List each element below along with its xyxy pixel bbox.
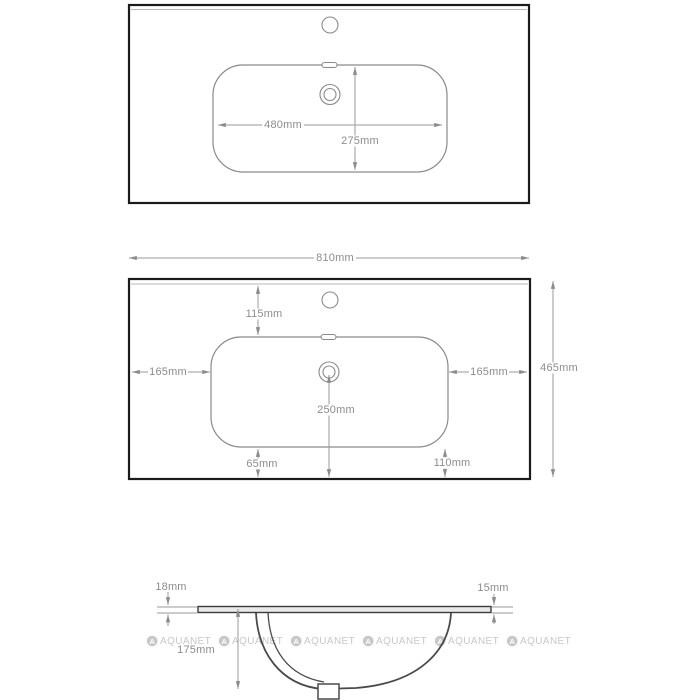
- watermark-label: AQUANET: [304, 636, 355, 647]
- technical-drawing-canvas: A AQUANET A AQUANET A AQUANET A AQUANET …: [0, 0, 700, 700]
- watermark-label: AQUANET: [520, 636, 571, 647]
- aquanet-watermark: A AQUANET: [291, 636, 355, 647]
- aquanet-logo-letter: A: [365, 637, 371, 646]
- top-plan-view: 480mm 275mm: [129, 5, 529, 203]
- sink-technical-drawing-page: A AQUANET A AQUANET A AQUANET A AQUANET …: [0, 0, 700, 700]
- dimension-label: 18mm: [155, 581, 186, 593]
- dimension-label: 110mm: [434, 457, 471, 469]
- overflow-slot: [321, 335, 336, 340]
- drain-inner-ring: [324, 89, 336, 101]
- bowl-inner-profile: [268, 613, 324, 682]
- aquanet-watermark: A AQUANET: [507, 636, 571, 647]
- dimension-label: 480mm: [264, 119, 302, 131]
- dimension-label: 165mm: [470, 366, 508, 378]
- dimension-label: 465mm: [540, 362, 578, 374]
- dimension-label: 810mm: [316, 252, 354, 264]
- dimension-left-thickness: 18mm: [155, 581, 186, 626]
- dimension-label: 15mm: [477, 582, 508, 594]
- dimension-total-width: 810mm: [129, 252, 529, 264]
- overflow-slot: [322, 63, 337, 68]
- aquanet-logo-letter: A: [509, 637, 515, 646]
- aquanet-logo-letter: A: [221, 637, 227, 646]
- watermark-label: AQUANET: [376, 636, 427, 647]
- dimension-label: 165mm: [149, 366, 187, 378]
- watermark-label: AQUANET: [448, 636, 499, 647]
- aquanet-logo-letter: A: [149, 637, 155, 646]
- dimension-label: 115mm: [246, 308, 283, 320]
- countertop-slab-profile: [198, 607, 491, 613]
- bowl-outer-profile: [256, 613, 451, 689]
- faucet-hole: [322, 17, 338, 33]
- dimension-total-depth: 465mm: [540, 281, 579, 477]
- aquanet-watermark: A AQUANET: [363, 636, 427, 647]
- dimensioned-plan-view: 810mm 115mm 165mm 165mm 250mm: [129, 252, 579, 479]
- dimension-bowl-depth: 175mm: [176, 609, 238, 689]
- dimension-label: 275mm: [341, 135, 379, 147]
- dimension-right-thickness: 15mm: [477, 582, 508, 624]
- dimension-label: 250mm: [317, 404, 355, 416]
- aquanet-logo-letter: A: [293, 637, 299, 646]
- dimension-label: 175mm: [177, 644, 215, 656]
- dimension-label: 65mm: [246, 458, 277, 470]
- faucet-hole: [322, 292, 338, 308]
- drain-fitting: [318, 684, 339, 699]
